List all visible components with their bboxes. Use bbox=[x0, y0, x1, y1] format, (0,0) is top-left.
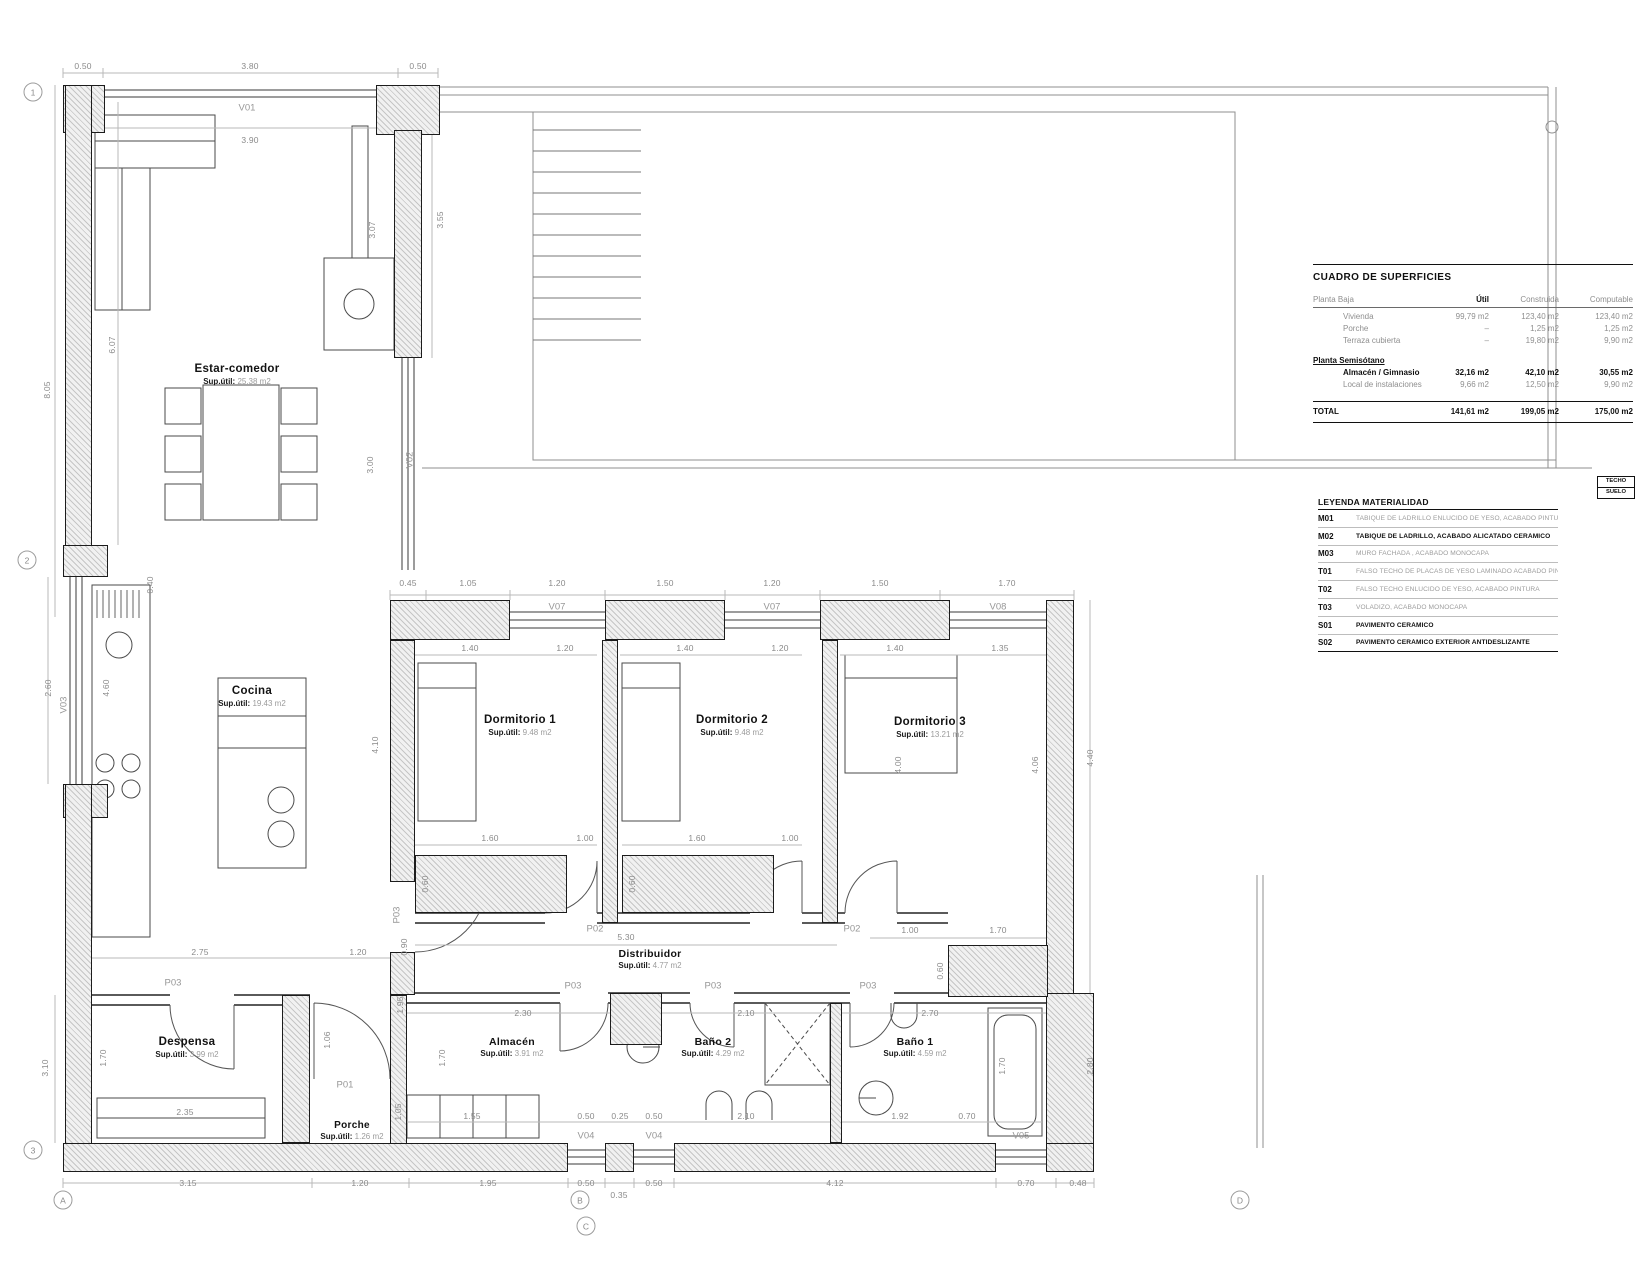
wardrobe-dorm2 bbox=[622, 855, 774, 913]
wall-bedroom-band-1 bbox=[390, 600, 510, 640]
door-label-p02-dorm1: P02 bbox=[587, 924, 604, 935]
dim-label: 1.55 bbox=[463, 1111, 480, 1121]
dim-label: 2.35 bbox=[176, 1107, 193, 1117]
grid-bubble-c: C bbox=[577, 1217, 596, 1236]
door-label-p03-spine: P03 bbox=[392, 907, 403, 924]
dim-label: 1.50 bbox=[871, 578, 888, 588]
dim-label: 1.50 bbox=[656, 578, 673, 588]
wall-pillar-topright bbox=[376, 85, 440, 135]
room-label-dormitorio2: Dormitorio 2 Sup.útil: 9.48 m2 bbox=[696, 714, 768, 737]
table-row: Terraza cubierta – 19,80 m2 9,90 m2 bbox=[1313, 335, 1633, 347]
dim-label: 0.60 bbox=[935, 962, 945, 979]
door-label-p02-dorm3: P02 bbox=[844, 924, 861, 935]
legend-row-m01: M01TABIQUE DE LADRILLO ENLUCIDO DE YESO,… bbox=[1318, 510, 1558, 528]
dim-label: 0.45 bbox=[399, 578, 416, 588]
window-label-v07a: V07 bbox=[549, 602, 566, 613]
dim-label: 0.35 bbox=[610, 1190, 627, 1200]
dim-label: 1.60 bbox=[688, 833, 705, 843]
techo-suelo-chip: TECHO SUELO bbox=[1597, 476, 1635, 499]
legend-row-s02: S02PAVIMENTO CERÁMICO EXTERIOR ANTIDESLI… bbox=[1318, 635, 1558, 653]
dim-label: 0.50 bbox=[577, 1111, 594, 1121]
dim-label: 2.10 bbox=[737, 1111, 754, 1121]
room-label-bano1: Baño 1 Sup.útil: 4.59 m2 bbox=[883, 1036, 946, 1058]
legend-row-s01: S01PAVIMENTO CERÁMICO bbox=[1318, 617, 1558, 635]
table-section-title: Planta Semisótano bbox=[1313, 356, 1633, 365]
grid-bubble-2: 2 bbox=[18, 551, 37, 570]
dim-label: 1.40 bbox=[676, 643, 693, 653]
dim-label: 1.40 bbox=[886, 643, 903, 653]
wall-right-living bbox=[394, 130, 422, 358]
dim-label: 4.40 bbox=[1085, 749, 1095, 766]
col-construida: Construida bbox=[1489, 294, 1559, 306]
dim-label: 0.50 bbox=[645, 1111, 662, 1121]
dim-label: 0.50 bbox=[577, 1178, 594, 1188]
window-label-v02: V02 bbox=[405, 452, 416, 469]
floorplan-sheet: Estar-comedor Sup.útil: 25.38 m2 Cocina … bbox=[0, 0, 1650, 1275]
dim-label: 2.75 bbox=[191, 947, 208, 957]
dim-label: 2.10 bbox=[737, 1008, 754, 1018]
table-row: Local de instalaciones 9,66 m2 12,50 m2 … bbox=[1313, 379, 1633, 391]
dim-label: 1.20 bbox=[351, 1178, 368, 1188]
dim-label: 4.00 bbox=[893, 756, 903, 773]
dim-label: 0.70 bbox=[1017, 1178, 1034, 1188]
dim-label: 1.05 bbox=[459, 578, 476, 588]
window-label-v05: V05 bbox=[1013, 1131, 1030, 1142]
grid-bubble-d: D bbox=[1231, 1191, 1250, 1210]
table-row: Vivienda 99,79 m2 123,40 m2 123,40 m2 bbox=[1313, 311, 1633, 323]
dim-label: 1.20 bbox=[556, 643, 573, 653]
window-label-v03: V03 bbox=[59, 697, 70, 714]
dim-label: 0.50 bbox=[645, 1178, 662, 1188]
materials-legend: LEYENDA MATERIALIDAD M01TABIQUE DE LADRI… bbox=[1318, 497, 1558, 652]
door-label-p03-almacen: P03 bbox=[565, 981, 582, 992]
wardrobe-dorm1 bbox=[415, 855, 567, 913]
dim-label: 0.48 bbox=[1069, 1178, 1086, 1188]
dim-label: 1.00 bbox=[576, 833, 593, 843]
wall-left-upper bbox=[65, 85, 92, 577]
dim-label: 0.60 bbox=[627, 875, 637, 892]
dim-label: 1.40 bbox=[461, 643, 478, 653]
dim-label: 1.95 bbox=[395, 996, 405, 1013]
dim-label: 5.30 bbox=[617, 932, 634, 942]
dim-label: 1.95 bbox=[479, 1178, 496, 1188]
legend-row-t02: T02FALSO TECHO ENLUCIDO DE YESO, ACABADO… bbox=[1318, 581, 1558, 599]
dim-label: 1.70 bbox=[997, 1057, 1007, 1074]
dim-label: 6.07 bbox=[107, 336, 117, 353]
window-label-v04a: V04 bbox=[578, 1131, 595, 1142]
legend-row-t03: T03VOLADIZO, ACABADO MONOCAPA bbox=[1318, 599, 1558, 617]
wall-spine-upper bbox=[390, 640, 415, 882]
dim-label: 1.70 bbox=[98, 1049, 108, 1066]
dim-label: 4.12 bbox=[826, 1178, 843, 1188]
grid-bubble-b: B bbox=[571, 1191, 590, 1210]
dim-label: 1.20 bbox=[548, 578, 565, 588]
dim-label: 2.60 bbox=[43, 679, 53, 696]
wall-divider-banos bbox=[830, 1003, 842, 1143]
legend-title: LEYENDA MATERIALIDAD bbox=[1318, 497, 1558, 510]
dim-label: 3.00 bbox=[365, 456, 375, 473]
dim-label: 0.50 bbox=[74, 61, 91, 71]
door-label-p03-bano1: P03 bbox=[860, 981, 877, 992]
legend-row-m02: M02TABIQUE DE LADRILLO, ACABADO ALICATAD… bbox=[1318, 528, 1558, 546]
room-label-dormitorio3: Dormitorio 3 Sup.útil: 13.21 m2 bbox=[894, 716, 966, 739]
wall-despensa-right bbox=[282, 995, 310, 1143]
dim-label: 1.92 bbox=[891, 1111, 908, 1121]
dim-label: 0.70 bbox=[958, 1111, 975, 1121]
dim-label: 3.15 bbox=[179, 1178, 196, 1188]
dim-label: 0.60 bbox=[420, 875, 430, 892]
door-label-p03-bano2: P03 bbox=[705, 981, 722, 992]
dim-label: 1.70 bbox=[989, 925, 1006, 935]
dim-label: 1.20 bbox=[349, 947, 366, 957]
wall-bottom-1 bbox=[63, 1143, 568, 1172]
grid-bubble-a: A bbox=[54, 1191, 73, 1210]
room-label-despensa: Despensa Sup.útil: 3.99 m2 bbox=[155, 1036, 218, 1059]
dim-label: 1.70 bbox=[437, 1049, 447, 1066]
wall-almacen-left bbox=[390, 995, 407, 1145]
dim-label: 1.06 bbox=[322, 1031, 332, 1048]
dim-label: 4.10 bbox=[370, 736, 380, 753]
dim-label: 0.90 bbox=[399, 938, 409, 955]
room-label-bano2: Baño 2 Sup.útil: 4.29 m2 bbox=[681, 1036, 744, 1058]
suelo-label: SUELO bbox=[1598, 488, 1634, 498]
door-label-p03-despensa: P03 bbox=[165, 978, 182, 989]
wall-divider-dorm1-2 bbox=[602, 640, 618, 923]
room-label-porche: Porche Sup.útil: 1.26 m2 bbox=[320, 1120, 383, 1142]
dim-label: 2.70 bbox=[921, 1008, 938, 1018]
door-label-p01: P01 bbox=[337, 1080, 354, 1091]
wall-left-mid-block bbox=[63, 545, 108, 577]
table-row: Porche – 1,25 m2 1,25 m2 bbox=[1313, 323, 1633, 335]
wall-bedroom-band-2 bbox=[605, 600, 725, 640]
wall-right-upper bbox=[1046, 600, 1074, 995]
dim-label: 3.90 bbox=[241, 135, 258, 145]
dim-label: 1.35 bbox=[991, 643, 1008, 653]
surface-table-title: CUADRO DE SUPERFICIES bbox=[1313, 264, 1633, 283]
wall-spine-lower bbox=[390, 952, 415, 995]
dim-label: 1.20 bbox=[763, 578, 780, 588]
dim-label: 1.70 bbox=[998, 578, 1015, 588]
window-label-v08: V08 bbox=[990, 602, 1007, 613]
room-label-estar: Estar-comedor Sup.útil: 25.38 m2 bbox=[194, 363, 279, 386]
room-label-dormitorio1: Dormitorio 1 Sup.útil: 9.48 m2 bbox=[484, 714, 556, 737]
table-total-row: TOTAL 141,61 m2 199,05 m2 175,00 m2 bbox=[1313, 401, 1633, 423]
wall-bottom-4 bbox=[1046, 1143, 1094, 1172]
wall-bedroom-band-3 bbox=[820, 600, 950, 640]
col-util: Útil bbox=[1427, 294, 1489, 306]
dim-label: 1.00 bbox=[781, 833, 798, 843]
col-computable: Computable bbox=[1559, 294, 1633, 306]
dim-label: 3.07 bbox=[367, 221, 377, 238]
dim-label: 1.00 bbox=[901, 925, 918, 935]
surface-table-header: Planta Baja Útil Construida Computable bbox=[1313, 294, 1633, 308]
dim-label: 2.30 bbox=[514, 1008, 531, 1018]
grid-bubble-1: 1 bbox=[24, 83, 43, 102]
wall-boiler-column bbox=[610, 993, 662, 1045]
grid-bubble-3: 3 bbox=[24, 1141, 43, 1160]
wall-left-lower bbox=[65, 784, 92, 1172]
dim-label: 1.05 bbox=[393, 1103, 403, 1120]
legend-row-m03: M03MURO FACHADA , ACABADO MONOCAPA bbox=[1318, 546, 1558, 564]
dim-label: 3.10 bbox=[40, 1059, 50, 1076]
wall-divider-dorm2-3 bbox=[822, 640, 838, 923]
table-row: Almacén / Gimnasio 32,16 m2 42,10 m2 30,… bbox=[1313, 367, 1633, 379]
dim-label: 2.80 bbox=[1085, 1057, 1095, 1074]
techo-label: TECHO bbox=[1598, 477, 1634, 488]
wall-bottom-3 bbox=[674, 1143, 996, 1172]
room-label-distribuidor: Distribuidor Sup.útil: 4.77 m2 bbox=[618, 948, 681, 970]
window-label-v04b: V04 bbox=[646, 1131, 663, 1142]
wall-bottom-2 bbox=[605, 1143, 634, 1172]
dim-label: 8.05 bbox=[42, 381, 52, 398]
dim-label: 3.80 bbox=[241, 61, 258, 71]
dim-label: 4.06 bbox=[1030, 756, 1040, 773]
window-label-v01: V01 bbox=[239, 103, 256, 114]
wardrobe-dorm3 bbox=[948, 945, 1048, 997]
dim-label: 0.40 bbox=[145, 576, 155, 593]
room-label-almacen: Almacén Sup.útil: 3.91 m2 bbox=[480, 1036, 543, 1058]
legend-row-t01: T01FALSO TECHO DE PLACAS DE YESO LAMINAD… bbox=[1318, 563, 1558, 581]
surface-table: CUADRO DE SUPERFICIES Planta Baja Útil C… bbox=[1313, 264, 1633, 423]
dim-label: 4.60 bbox=[101, 679, 111, 696]
dim-label: 0.50 bbox=[409, 61, 426, 71]
dim-label: 1.60 bbox=[481, 833, 498, 843]
dim-label: 3.55 bbox=[435, 211, 445, 228]
window-label-v07b: V07 bbox=[764, 602, 781, 613]
room-label-cocina: Cocina Sup.útil: 19.43 m2 bbox=[218, 685, 286, 708]
col-planta-baja: Planta Baja bbox=[1313, 294, 1427, 306]
dim-label: 0.25 bbox=[611, 1111, 628, 1121]
dim-label: 1.20 bbox=[771, 643, 788, 653]
